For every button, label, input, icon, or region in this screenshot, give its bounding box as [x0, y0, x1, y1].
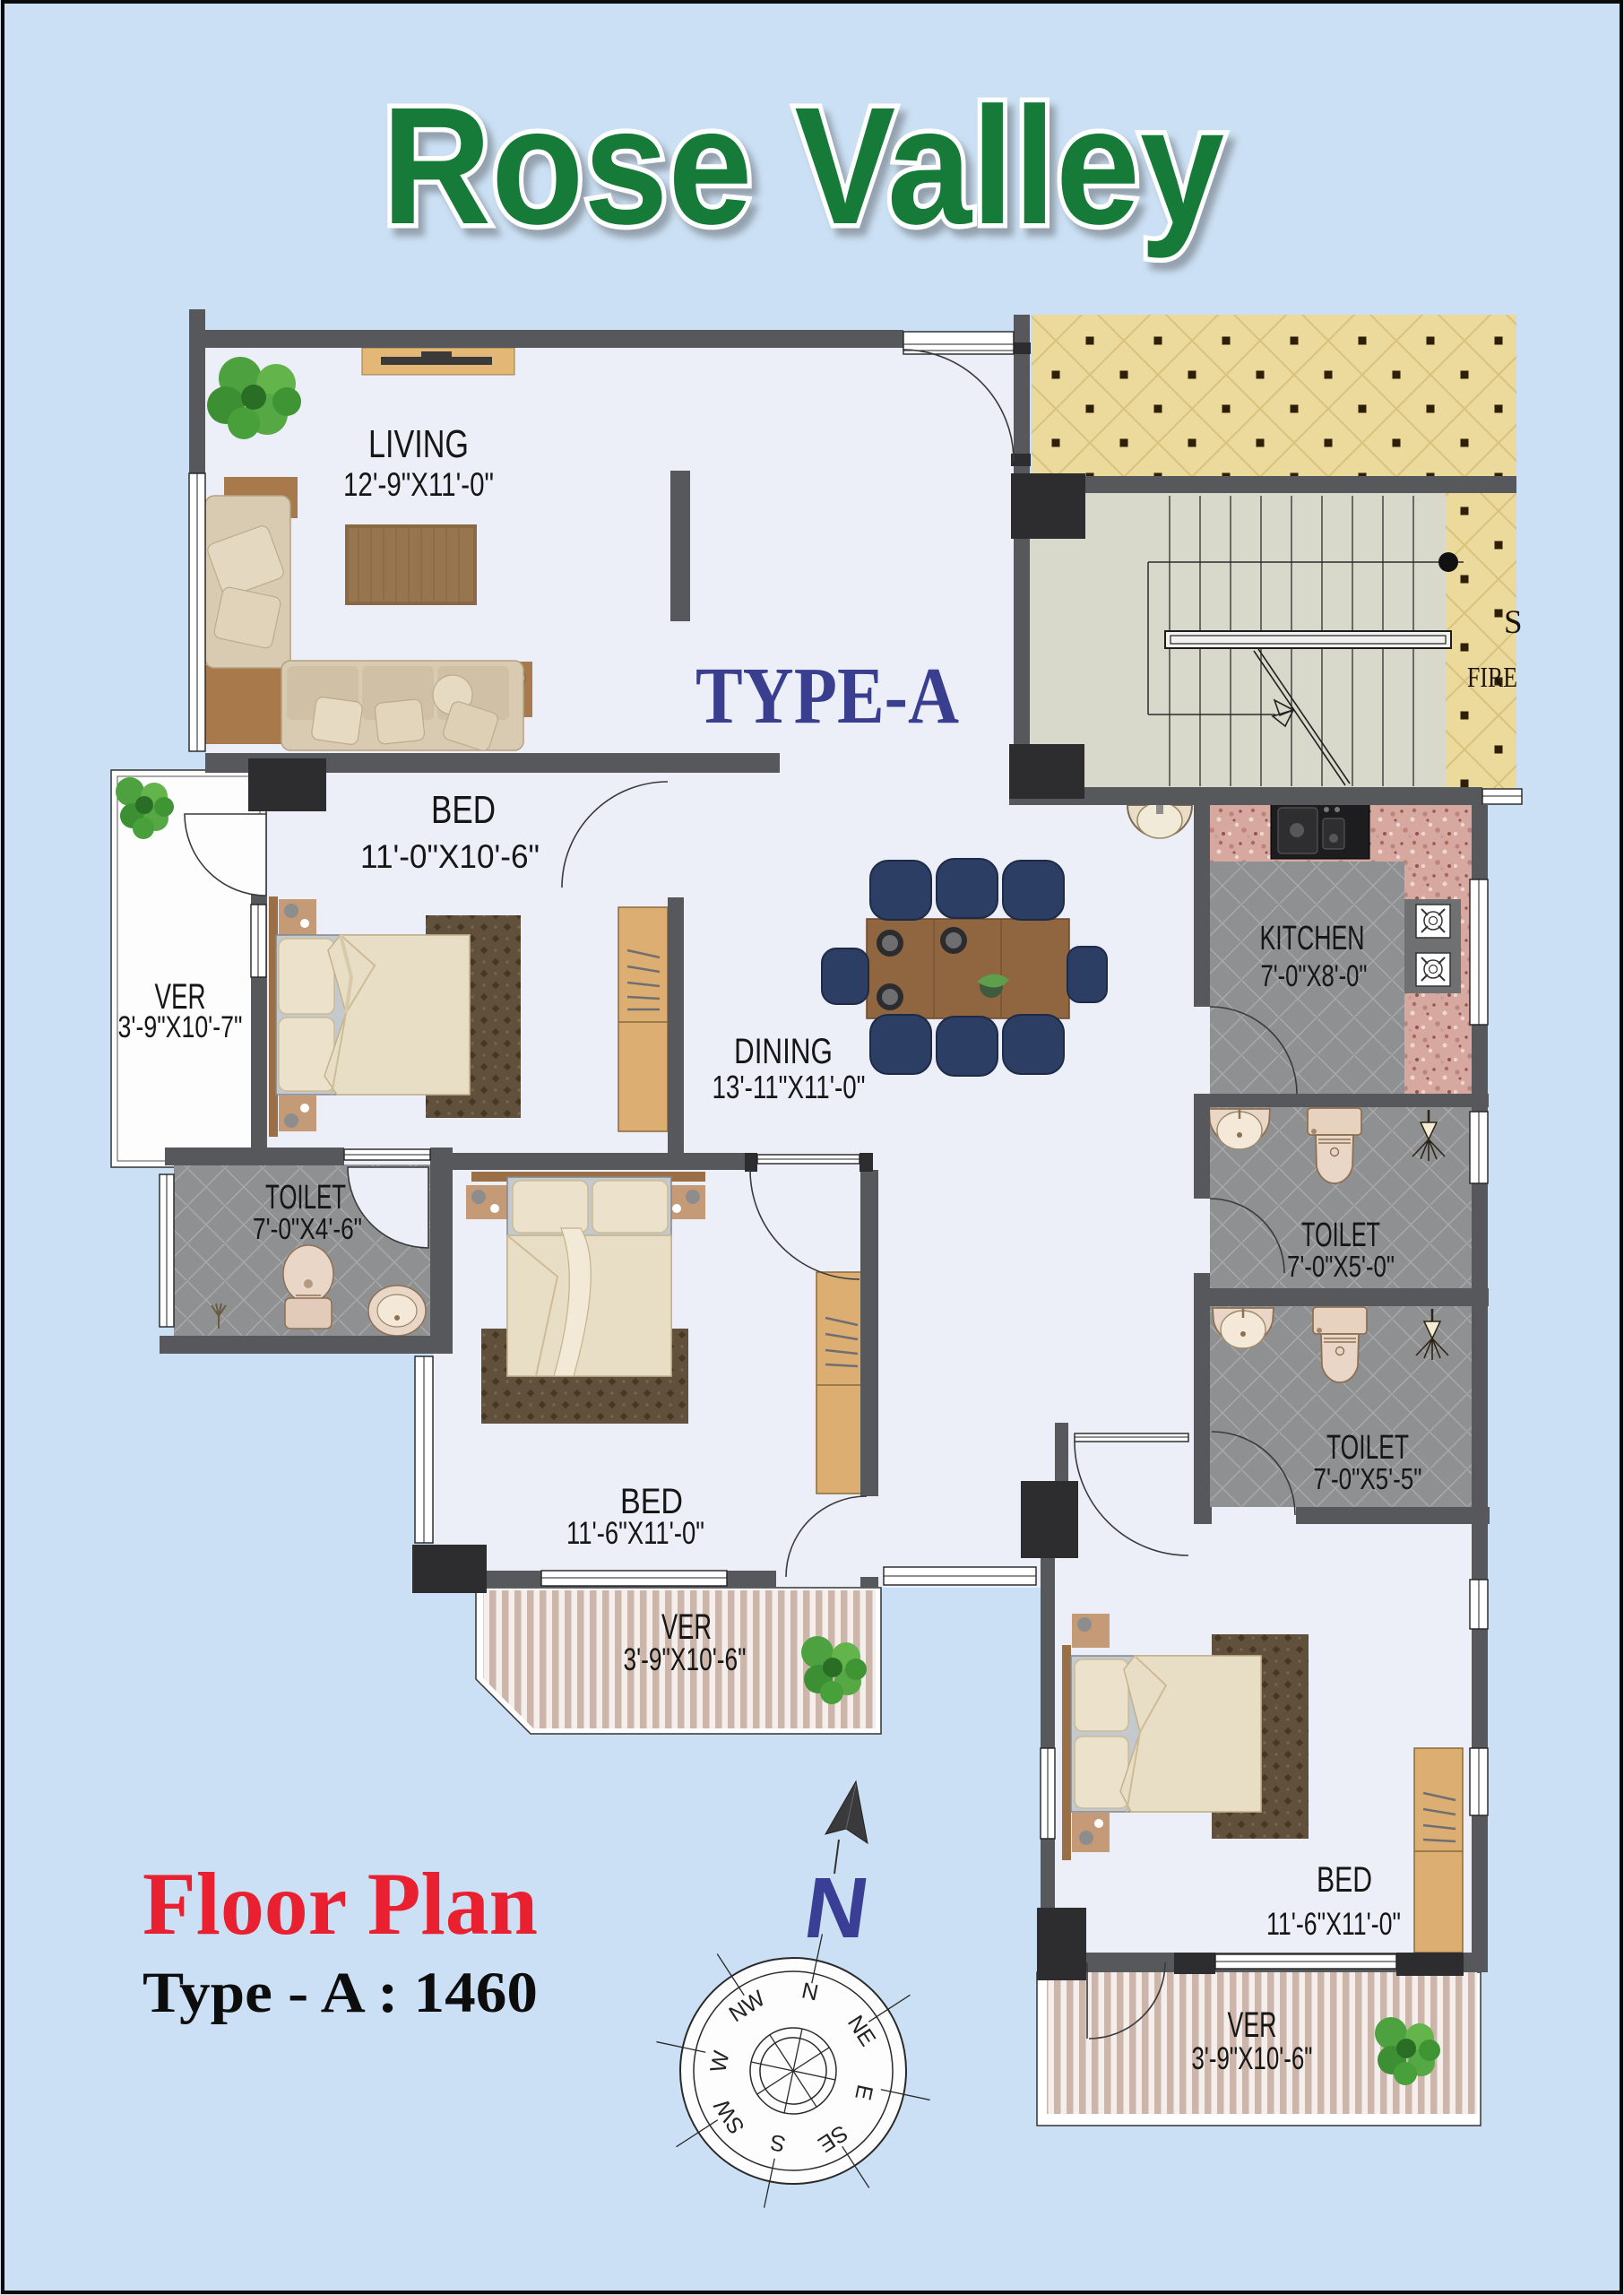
svg-text:KITCHEN: KITCHEN — [1260, 920, 1365, 957]
svg-text:7'-0"X8'-0": 7'-0"X8'-0" — [1261, 959, 1368, 993]
svg-text:12'-9"X11'-0": 12'-9"X11'-0" — [343, 466, 494, 503]
svg-text:7'-0"X5'-5": 7'-0"X5'-5" — [1314, 1462, 1422, 1495]
svg-text:VER: VER — [661, 1607, 712, 1647]
svg-text:11'-6"X11'-0": 11'-6"X11'-0" — [566, 1516, 704, 1551]
svg-text:11'-6"X11'-0": 11'-6"X11'-0" — [1266, 1907, 1401, 1942]
svg-text:11'-0"X10'-6": 11'-0"X10'-6" — [360, 838, 540, 875]
svg-text:7'-0"X4'-6": 7'-0"X4'-6" — [253, 1212, 362, 1245]
svg-text:3'-9"X10'-6": 3'-9"X10'-6" — [624, 1642, 747, 1677]
svg-text:Floor Plan: Floor Plan — [143, 1854, 538, 1953]
svg-text:FIRE: FIRE — [1467, 661, 1517, 693]
svg-text:7'-0"X5'-0": 7'-0"X5'-0" — [1287, 1250, 1395, 1283]
svg-text:Rose Valley: Rose Valley — [382, 74, 1224, 259]
svg-text:S: S — [1504, 604, 1523, 641]
svg-text:Type - A : 1460: Type - A : 1460 — [143, 1961, 538, 2025]
svg-text:BED: BED — [1317, 1860, 1372, 1900]
svg-text:3'-9"X10'-7": 3'-9"X10'-7" — [118, 1010, 243, 1044]
svg-text:TOILET: TOILET — [1326, 1429, 1409, 1467]
svg-text:DINING: DINING — [734, 1032, 833, 1071]
svg-text:TOILET: TOILET — [265, 1179, 346, 1217]
svg-text:TYPE-A: TYPE-A — [695, 652, 959, 740]
svg-text:13'-11"X11'-0": 13'-11"X11'-0" — [713, 1069, 866, 1105]
svg-text:BED: BED — [431, 788, 496, 832]
svg-text:VER: VER — [1228, 2005, 1277, 2045]
svg-text:TOILET: TOILET — [1301, 1217, 1380, 1254]
svg-text:3'-9"X10'-6": 3'-9"X10'-6" — [1192, 2041, 1313, 2076]
svg-text:LIVING: LIVING — [368, 422, 469, 466]
